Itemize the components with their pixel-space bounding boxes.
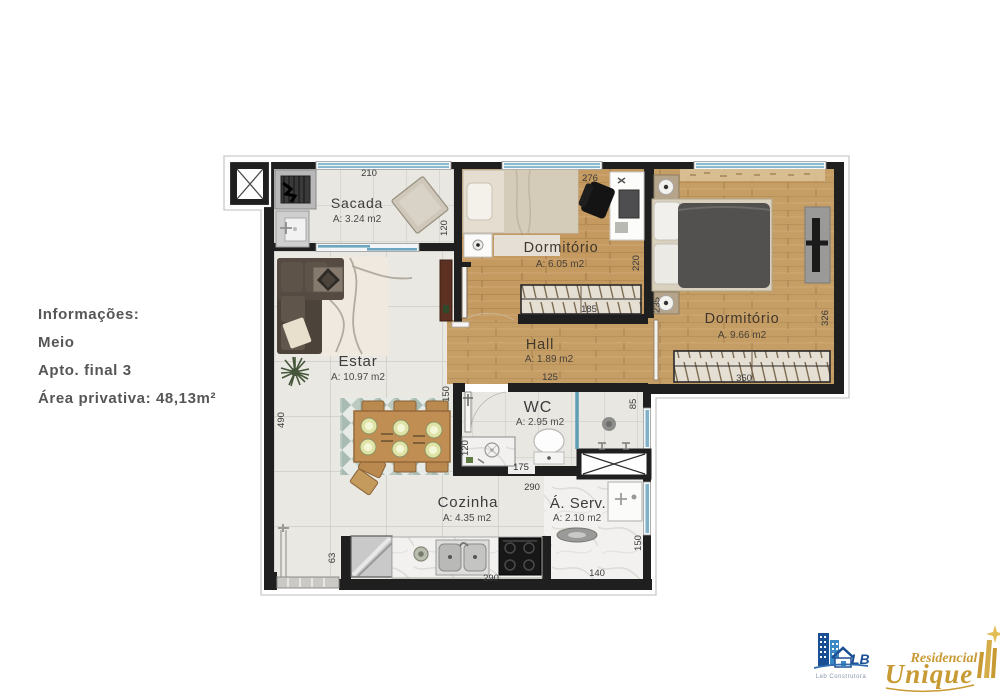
svg-text:Sacada: Sacada — [331, 195, 383, 211]
svg-text:A: 1.89 m2: A: 1.89 m2 — [525, 354, 574, 365]
svg-text:A: 10.97 m2: A: 10.97 m2 — [331, 372, 385, 383]
svg-text:Dormitório: Dormitório — [524, 240, 599, 256]
svg-text:A: 6.05 m2: A: 6.05 m2 — [536, 259, 585, 270]
svg-text:235: 235 — [652, 297, 663, 313]
svg-text:Hall: Hall — [526, 337, 554, 353]
svg-text:350: 350 — [736, 373, 752, 384]
svg-text:A: 2.95 m2: A: 2.95 m2 — [516, 417, 565, 428]
svg-text:326: 326 — [820, 310, 831, 326]
svg-text:210: 210 — [361, 168, 377, 179]
svg-text:A: 2.10 m2: A: 2.10 m2 — [553, 513, 602, 524]
svg-text:140: 140 — [589, 568, 605, 579]
svg-text:120: 120 — [460, 440, 471, 456]
svg-text:220: 220 — [631, 255, 642, 271]
svg-text:125: 125 — [542, 372, 558, 383]
svg-text:150: 150 — [633, 535, 644, 551]
svg-text:Leb Construtora: Leb Construtora — [816, 674, 867, 680]
svg-text:Estar: Estar — [338, 353, 377, 370]
svg-text:175: 175 — [513, 462, 529, 473]
svg-text:A: 4.35 m2: A: 4.35 m2 — [443, 513, 492, 524]
svg-text:290: 290 — [483, 573, 499, 584]
svg-text:290: 290 — [524, 482, 540, 493]
svg-text:A. 9.66 m2: A. 9.66 m2 — [718, 330, 767, 341]
svg-text:63: 63 — [327, 553, 338, 564]
svg-text:185: 185 — [581, 304, 597, 315]
svg-text:150: 150 — [441, 386, 452, 402]
svg-text:85: 85 — [628, 399, 639, 410]
svg-text:Unique: Unique — [885, 659, 974, 689]
svg-text:490: 490 — [276, 412, 287, 428]
svg-text:276: 276 — [582, 173, 598, 184]
svg-text:WC: WC — [524, 399, 553, 416]
svg-text:Cozinha: Cozinha — [438, 494, 499, 511]
svg-text:A: 3.24 m2: A: 3.24 m2 — [333, 214, 382, 225]
svg-text:Dormitório: Dormitório — [705, 311, 780, 327]
svg-text:120: 120 — [439, 220, 450, 236]
svg-text:Á. Serv.: Á. Serv. — [550, 495, 606, 512]
